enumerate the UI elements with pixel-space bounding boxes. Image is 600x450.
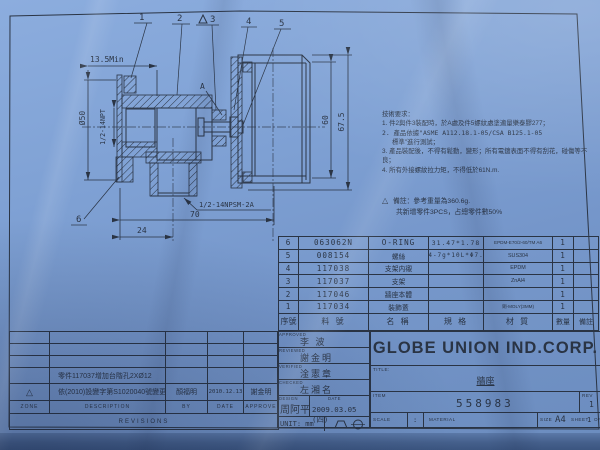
- remark-note: △ 備註：參考重量為360.6g. 共新增零件3PCS，占總零件數50%: [382, 195, 596, 219]
- part-no: 4: [279, 263, 299, 276]
- checked-row: CHECKED 左湘名: [278, 380, 369, 396]
- part-qty: 1: [553, 237, 574, 250]
- part-spec: M4-7g*10L*Φ7.3: [429, 250, 484, 263]
- photographed-drawing-sheet: 13.5Min Ø50 1/2-14NPT 1/2-14NPSM-2A 70 2…: [0, 0, 600, 450]
- divider: [579, 392, 580, 412]
- unit-label: UNIT: mm: [280, 420, 314, 428]
- empty-cell: [10, 332, 50, 344]
- revisions-table: 零件117037增加台階孔2XØ12 △ 依(2010)設變字第S1020040…: [9, 331, 279, 430]
- note-3: 3. 產品裝配後，不得有鬆動，變形；所有電鍍表面不得有刮花，碰傷等不良；: [382, 147, 596, 166]
- unit-row: UNIT: mm: [278, 417, 369, 431]
- part-qty: 1: [553, 288, 574, 301]
- approved-row: APPROVED 李 波: [278, 332, 369, 348]
- part-name: 支架: [369, 275, 429, 288]
- callout-6: 6: [76, 215, 81, 225]
- part-spec: [429, 301, 484, 314]
- empty-cell: [10, 344, 50, 356]
- dim-npt: 1/2-14NPT: [99, 109, 107, 145]
- part-spec: [429, 275, 484, 288]
- part-no: 6: [279, 237, 299, 250]
- dim-70: 70: [190, 210, 200, 219]
- part-spec: [429, 263, 484, 276]
- divider: [423, 413, 424, 428]
- reviewed-name: 謝金明: [300, 351, 333, 364]
- design-row: DESIGN 周阿平 DATE 2009.03.05 (四): [278, 396, 369, 417]
- part-qty: 1: [553, 275, 574, 288]
- title-row: TITLE: 牆座: [371, 366, 600, 392]
- part-name: 裝飾蓋: [369, 301, 429, 314]
- note-2-line1: 2. 產品依據"ASME A112.18.1-05/CSA B125.1-05: [382, 129, 596, 138]
- verified-row: VERIFIED 淦憲章: [278, 364, 369, 380]
- callout-5: 5: [279, 19, 284, 29]
- part-material: ZnAl4: [484, 275, 553, 288]
- part-spec: [429, 288, 484, 301]
- note-2-line2: 標準"進行測試；: [382, 138, 596, 147]
- parts-header-no: 序號: [279, 314, 299, 330]
- empty-cell: [166, 368, 208, 384]
- checked-name: 左湘名: [300, 383, 333, 396]
- revisions-header-date: DATE: [208, 401, 244, 414]
- item-label: ITEM: [373, 393, 386, 398]
- item-row: ITEM 558983 REV 1: [371, 392, 600, 413]
- callout-3: 3: [210, 15, 215, 25]
- part-no: 1: [279, 301, 299, 314]
- empty-cell: [244, 344, 278, 356]
- dim-24: 24: [137, 226, 147, 235]
- third-angle-projection-icon: [333, 418, 367, 431]
- part-name: 螺絲: [369, 250, 429, 263]
- approval-block: APPROVED 李 波 REVIEWED 謝金明 VERIFIED 淦憲章 C…: [277, 331, 370, 428]
- empty-cell: [208, 344, 244, 356]
- size-value: A4: [555, 415, 566, 425]
- dim-dia-50: Ø50: [77, 111, 87, 126]
- size-label: SIZE: [540, 417, 552, 422]
- notes-heading: 技術要求：: [382, 110, 596, 119]
- scale-label: SCALE: [373, 417, 391, 422]
- part-qty: 1: [553, 263, 574, 276]
- parts-header-pn: 料 號: [299, 314, 369, 330]
- note-4: 4. 所有外接螺紋拉力矩，不得低於61N.m.: [382, 166, 596, 175]
- verified-name: 淦憲章: [300, 367, 333, 380]
- company-title-block: GLOBE UNION IND.CORP. TITLE: 牆座 ITEM 558…: [370, 331, 600, 428]
- revision-by: 顏福明: [166, 384, 208, 401]
- part-note: [574, 263, 598, 276]
- empty-cell: [208, 368, 244, 384]
- verified-label: VERIFIED: [279, 364, 302, 369]
- technical-notes: 技術要求： 1. 件2與件3裝配時，於A處及件5螺紋處塗適量樂泰膠277； 2.…: [382, 110, 596, 175]
- revisions-header-by: BY: [166, 401, 208, 414]
- part-material: 銅-MOLY(3MM): [484, 301, 553, 314]
- remark-triangle-icon: △: [382, 196, 388, 205]
- date-label: DATE: [328, 396, 341, 401]
- revisions-header-zone: ZONE: [10, 401, 50, 414]
- note-1: 1. 件2與件3裝配時，於A處及件5螺紋處塗適量樂泰膠277；: [382, 119, 596, 128]
- approved-name: 李 波: [300, 335, 327, 348]
- revision-description: 零件117037增加台階孔2XØ12: [50, 368, 166, 384]
- empty-cell: [208, 356, 244, 368]
- part-material: EPDM: [484, 263, 553, 276]
- part-number: 117037: [299, 275, 369, 288]
- empty-cell: [50, 332, 166, 344]
- empty-cell: [10, 368, 50, 384]
- divider: [407, 413, 408, 428]
- empty-cell: [166, 344, 208, 356]
- rev-value: 1: [589, 400, 594, 409]
- reviewed-row: REVIEWED 謝金明: [278, 348, 369, 364]
- empty-cell: [244, 368, 278, 384]
- parts-header-material: 材 質: [484, 314, 553, 330]
- parts-header-qty: 數量: [553, 314, 574, 330]
- revisions-header-description: DESCRIPTION: [50, 401, 166, 414]
- divider: [537, 413, 538, 428]
- part-material: EPDM-E70/2-60/TM A6: [484, 237, 553, 250]
- revision-date: 2010.12.13: [208, 384, 244, 401]
- dim-npsm: 1/2-14NPSM-2A: [199, 201, 255, 209]
- callout-4: 4: [246, 17, 251, 27]
- dim-60: 60: [321, 115, 330, 125]
- part-note: [574, 288, 598, 301]
- revision-description: 依(2010)設變字第S1020040號變更: [50, 384, 166, 401]
- part-no: 2: [279, 288, 299, 301]
- callout-1: 1: [139, 13, 144, 23]
- remark-line1: 備註：參考重量為360.6g.: [393, 198, 470, 205]
- empty-cell: [50, 356, 166, 368]
- empty-cell: [10, 356, 50, 368]
- parts-header-name: 名 稱: [369, 314, 429, 330]
- part-number: 063062N: [299, 237, 369, 250]
- parts-header-spec: 規 格: [429, 314, 484, 330]
- main-assembly-section-view: [82, 48, 325, 243]
- empty-cell: [244, 332, 278, 344]
- revision-triangle-icon: [199, 15, 207, 23]
- part-number: 117046: [299, 288, 369, 301]
- revision-zone-triangle-icon: △: [10, 384, 50, 401]
- scale-separator: :: [413, 416, 418, 424]
- parts-list-table: 6 063062N O-RING 31.47*1.78 EPDM-E70/2-6…: [278, 236, 599, 331]
- part-number: 008154: [299, 250, 369, 263]
- empty-cell: [244, 356, 278, 368]
- part-note: [574, 301, 598, 314]
- sheet-number: 1: [587, 416, 591, 424]
- part-name: 支架内襯: [369, 263, 429, 276]
- revision-approve: 謝金明: [244, 384, 278, 401]
- divider: [324, 417, 325, 431]
- divider: [309, 396, 310, 416]
- part-number: 117038: [299, 263, 369, 276]
- dim-13-5-min: 13.5Min: [90, 55, 124, 64]
- part-note: [574, 237, 598, 250]
- title-label: TITLE:: [373, 367, 390, 372]
- rev-label: REV: [582, 393, 593, 398]
- part-note: [574, 250, 598, 263]
- part-number: 117034: [299, 301, 369, 314]
- part-material: [484, 288, 553, 301]
- part-no: 5: [279, 250, 299, 263]
- remark-line2: 共新增零件3PCS，占總零件數50%: [382, 208, 596, 219]
- empty-cell: [50, 344, 166, 356]
- empty-cell: [208, 332, 244, 344]
- dim-67-5: 67.5: [337, 112, 346, 131]
- drawing-title: 牆座: [371, 374, 600, 387]
- item-number: 558983: [456, 397, 514, 410]
- company-name: GLOBE UNION IND.CORP.: [371, 332, 600, 366]
- revisions-header-approve: APPROVE: [244, 401, 278, 414]
- part-no: 3: [279, 275, 299, 288]
- designer-name: 周阿平: [280, 401, 310, 416]
- part-note: [574, 275, 598, 288]
- part-name: 牆座本體: [369, 288, 429, 301]
- callout-a: A: [200, 82, 205, 91]
- empty-cell: [166, 356, 208, 368]
- empty-cell: [166, 332, 208, 344]
- sheet-of-label: OF: [594, 417, 600, 422]
- part-qty: 1: [553, 301, 574, 314]
- part-qty: 1: [553, 250, 574, 263]
- part-name: O-RING: [369, 237, 429, 250]
- callout-2: 2: [177, 14, 182, 24]
- parts-header-note: 備註: [574, 314, 598, 330]
- scale-material-row: SCALE : MATERIAL SIZE A4 SHEET 1 OF: [371, 413, 600, 428]
- part-material: SUS304: [484, 250, 553, 263]
- part-spec: 31.47*1.78: [429, 237, 484, 250]
- revisions-band: REVISIONS: [10, 414, 278, 429]
- material-label: MATERIAL: [429, 417, 456, 422]
